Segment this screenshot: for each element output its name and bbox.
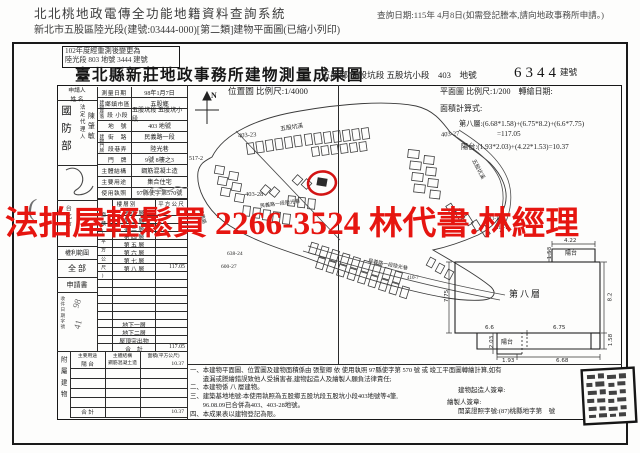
- map-label: 638-24: [227, 251, 243, 257]
- drafter-signature-label: 繪製人簽章:: [447, 400, 481, 407]
- area-calc-line3: 陽台:(1.93*2.03)+(4.22*1.53)=10.37: [461, 144, 569, 152]
- pencil-scribble: [150, 186, 188, 190]
- handwritten-signature: [66, 168, 93, 195]
- dimension-label: 6.75: [553, 325, 565, 331]
- map-label: 600-27: [221, 264, 237, 270]
- dimension-label: 1.53: [547, 247, 553, 259]
- north-label: N: [211, 92, 217, 100]
- note-line: 二、本建物係 八 層建物。: [190, 384, 590, 393]
- note-line: 三、建築基地地號:本使用執照為五股鄉五股坑段五股坑小段403地號等4筆,: [190, 393, 590, 402]
- map-label: 403-27: [441, 130, 460, 138]
- builder-signature-label: 建物起造人簽章:: [458, 388, 505, 395]
- dimension-label: 1.58: [608, 334, 614, 346]
- plan-scale-line: 平面圖 比例尺:1/200 轉繪日期:: [440, 88, 553, 96]
- subject-building: [316, 177, 327, 187]
- map-label: 403-23: [238, 131, 257, 139]
- area-calc-label: 面積計算式:: [440, 105, 482, 113]
- plan-balcony-top-label: 陽台: [565, 251, 577, 257]
- note-line: 一、本建物平面圖、位置圖及建物面積係由 張聖卿 依 使用執照 97縣使字第 57…: [190, 367, 590, 376]
- land-registry-query-page: 北北桃地政電傳全功能地籍資料查詢系統 查詢日期:115年 4月8日(如需登記謄本…: [0, 0, 640, 453]
- site-map-title: 位置圖 比例尺:1/4000: [228, 87, 308, 96]
- plan-balcony-bottom-label: 陽台: [501, 340, 513, 346]
- area-calc-line1: 第八層:(6.68*1.58)+(6.75*8.2)+(6.6*7.75): [459, 121, 584, 129]
- area-calc-line2: =117.05: [497, 131, 521, 139]
- dimension-label: 6.68: [556, 358, 568, 364]
- dimension-label: 6.6: [485, 325, 494, 331]
- dimension-label: 7.75: [444, 290, 450, 302]
- map-label: 410-7: [407, 276, 419, 281]
- plan-room-label: 第八層: [509, 290, 542, 299]
- dimension-label: 1.93: [502, 358, 514, 364]
- dimension-label: 2.03: [489, 336, 495, 348]
- floor-plan-drawing: [455, 249, 600, 354]
- foreclosure-ad-watermark: 法拍屋輕鬆買 2266-3524 林代書.林經理: [5, 196, 579, 244]
- license-number-label: 開業證照字號:(87)桃縣地字第 號: [458, 409, 555, 416]
- dimension-label: 8.2: [607, 293, 613, 302]
- map-label: 517-2: [189, 156, 203, 162]
